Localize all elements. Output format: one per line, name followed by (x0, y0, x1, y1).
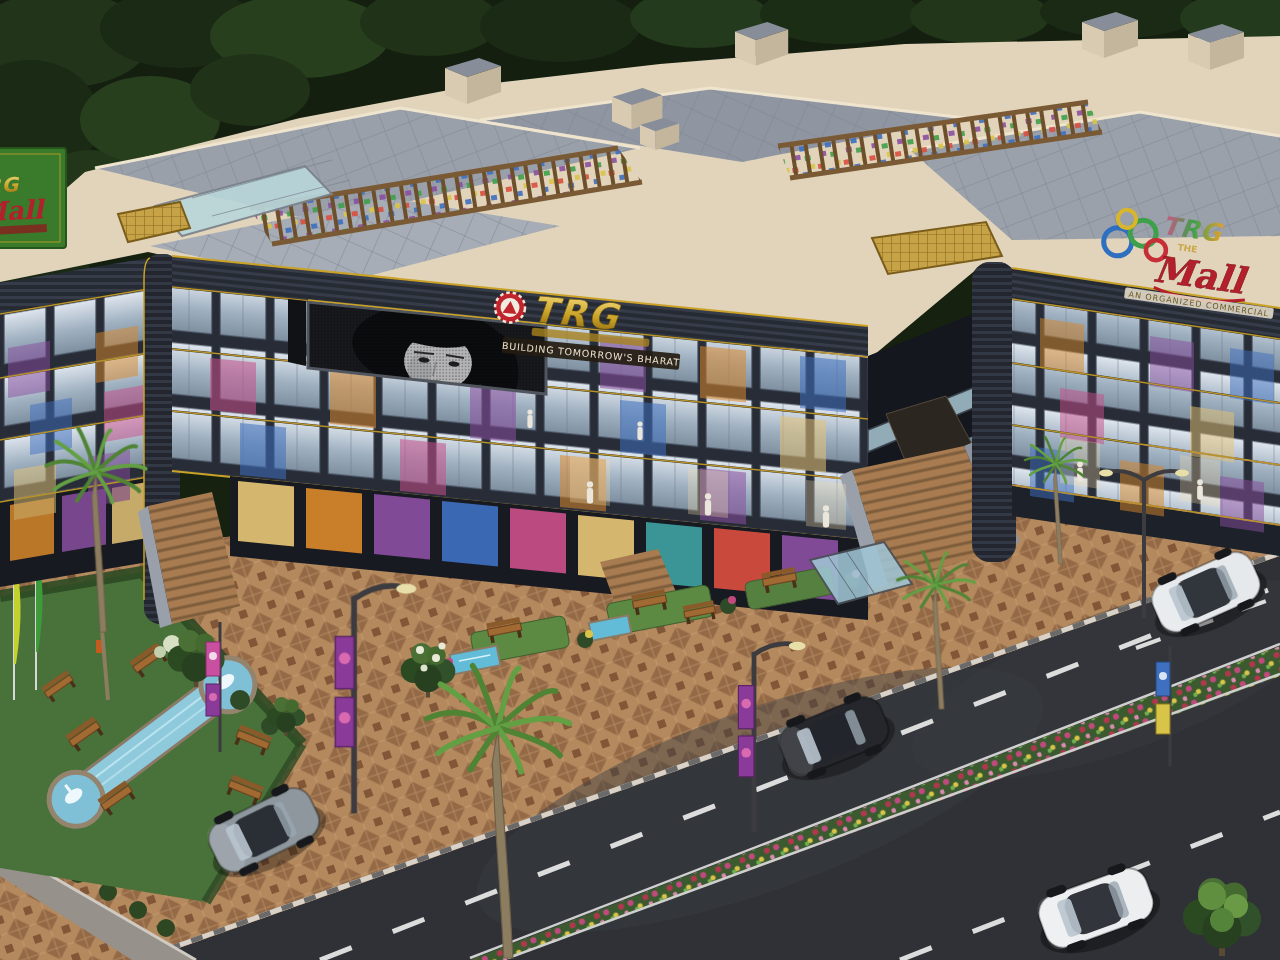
mannequin (1197, 479, 1203, 499)
mannequin (637, 421, 642, 440)
corner-pillar-right (972, 262, 1016, 562)
building-left-wing (0, 258, 148, 587)
mall-scene: TRG Mall (0, 0, 1280, 960)
left-mall-sign: TRG Mall (0, 148, 66, 248)
render-canvas: TRG Mall (0, 0, 1280, 960)
left-sign-name: Mall (0, 194, 47, 228)
mannequin (823, 505, 829, 527)
mannequin (705, 493, 711, 515)
mannequin (527, 409, 532, 428)
mannequin (587, 481, 593, 503)
